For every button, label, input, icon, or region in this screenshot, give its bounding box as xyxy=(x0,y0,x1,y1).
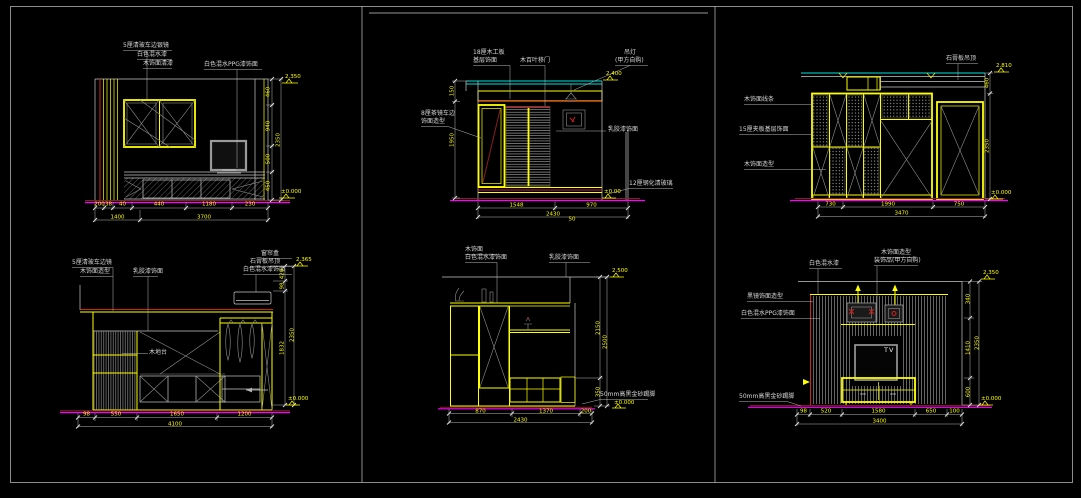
elevation-a xyxy=(85,51,298,223)
dim-label: 1580 xyxy=(872,409,886,415)
annotation-label: 乳胶漆饰面 xyxy=(608,127,638,133)
dim-label: 98 xyxy=(280,283,286,290)
dim-label: 550 xyxy=(111,412,122,418)
annotation-label: 木饰面造型 xyxy=(80,269,110,275)
annotation-label: 饰面造型 xyxy=(421,119,445,125)
dim-total-label: 4100 xyxy=(168,422,182,428)
level-label: ±0.00 xyxy=(604,190,621,196)
annotation-label: 白色混水PPG漆饰面 xyxy=(204,62,258,68)
level-label: ±0.000 xyxy=(281,190,301,196)
annotation-label: 8厘茶镜车边 xyxy=(421,111,455,117)
dim-label: 230 xyxy=(245,202,256,208)
annotation-label: 木地台 xyxy=(149,350,167,356)
dim-label: 350 xyxy=(596,387,602,398)
framed-art xyxy=(847,303,903,322)
dim-total-label: 3470 xyxy=(895,211,909,217)
annotation-label: 木饰面 xyxy=(465,247,483,253)
annotation-label: (甲方自购) xyxy=(615,58,644,64)
level-label: ±0.000 xyxy=(288,397,308,403)
annotation-label: 白色混水漆 xyxy=(809,261,839,267)
annotation-label: 18厘木工板 xyxy=(473,50,505,56)
dim-label: 420 xyxy=(280,268,286,279)
level-label: 2.810 xyxy=(996,64,1012,70)
dim-label: 340 xyxy=(966,294,972,305)
annotation-label: 木饰面线条 xyxy=(744,97,774,103)
hanging-clothes xyxy=(226,320,258,362)
annotation-label: 15厘夹板基层饰面 xyxy=(739,127,789,133)
dim-label: 1400 xyxy=(111,215,125,221)
level-label: 2.350 xyxy=(983,271,999,277)
annotation-label: 黑镜饰面造型 xyxy=(747,294,783,300)
dim-total-label: 3400 xyxy=(873,419,887,425)
annotation-label: 木饰面造型 xyxy=(881,250,911,256)
dim-label: 3700 xyxy=(197,215,211,221)
cad-canvas[interactable]: .w{stroke:#c8c8c8;stroke-width:0.7;fill:… xyxy=(0,0,1081,498)
tv-monitor xyxy=(211,141,246,170)
elevation-f xyxy=(739,258,995,427)
dim-label: 38 xyxy=(105,202,112,208)
dim-label: 730 xyxy=(825,202,836,208)
dim-label: 98 xyxy=(83,412,90,418)
annotation-label: 乳胶漆饰面 xyxy=(133,269,163,275)
dim-label: 450 xyxy=(266,181,272,192)
annotation-label: 乳胶漆饰面 xyxy=(549,255,579,261)
dim-label: 460 xyxy=(985,78,991,89)
dim-label: 1832 xyxy=(280,341,286,355)
dim-label: 50 xyxy=(569,217,576,223)
dim-label: 1200 xyxy=(238,412,252,418)
dim-total-label: 2500 xyxy=(603,335,609,349)
dim-label: 2150 xyxy=(596,321,602,335)
annotation-label: 白色混水漆 xyxy=(137,52,167,58)
elevation-b xyxy=(421,66,673,220)
dim-label: 970 xyxy=(586,203,597,209)
dim-label: 1370 xyxy=(539,409,553,415)
elevation-d xyxy=(60,259,308,429)
dim-label: 1950 xyxy=(450,133,456,147)
dim-label: 2350 xyxy=(985,139,991,153)
dim-label: 1548 xyxy=(510,203,524,209)
dim-label: 200 xyxy=(581,409,592,415)
level-label: ±0.000 xyxy=(981,397,1001,403)
dim-label: 460 xyxy=(266,87,272,98)
annotation-label: 白色混水PPG漆饰面 xyxy=(741,311,795,317)
dim-label: 870 xyxy=(475,409,486,415)
dim-label: 520 xyxy=(821,409,832,415)
dim-total-label: 2350 xyxy=(276,133,282,147)
dim-label: 1180 xyxy=(202,202,216,208)
dim-label: 600 xyxy=(966,386,972,397)
elevation-e xyxy=(438,255,648,425)
dim-label: 150 xyxy=(450,86,456,97)
level-label: ±0.000 xyxy=(991,191,1011,197)
annotation-label: 窗帘盒 xyxy=(261,251,279,257)
annotation-label: 木饰面清漆 xyxy=(143,61,173,67)
annotation-label: 木百叶移门 xyxy=(520,58,550,64)
dim-label: 1650 xyxy=(170,412,184,418)
dim-label: 100 xyxy=(949,409,960,415)
annotation-label: 5厘清玻车边银镜 xyxy=(123,43,169,49)
tv-label: TV xyxy=(884,347,894,354)
annotation-label: 50mm高黑金砂踢脚 xyxy=(739,394,794,400)
table-lamp xyxy=(524,318,532,330)
annotation-label: 5厘清玻车边镜 xyxy=(72,260,112,266)
annotation-label: 50mm高黑金砂踢脚 xyxy=(600,392,655,398)
cad-viewport[interactable]: .w{stroke:#c8c8c8;stroke-width:0.7;fill:… xyxy=(0,0,1081,498)
dim-label: 98 xyxy=(800,409,807,415)
dim-total-label: 2350 xyxy=(975,336,981,350)
dim-label: 440 xyxy=(154,202,165,208)
annotation-label: 石膏板吊顶 xyxy=(946,56,976,62)
dim-label: 200 xyxy=(94,202,105,208)
annotation-label: 吊灯 xyxy=(624,50,636,56)
annotation-label: 石膏板吊顶 xyxy=(250,259,280,265)
dim-total-label: 2430 xyxy=(514,418,528,424)
air-conditioner xyxy=(234,292,271,304)
dim-label: 650 xyxy=(926,409,937,415)
level-label: 2.365 xyxy=(296,258,312,264)
annotation-label: 白色混水漆饰面 xyxy=(465,255,507,261)
dim-label: 1990 xyxy=(881,202,895,208)
level-label: 2.500 xyxy=(612,269,628,275)
annotation-label: 装饰品(甲方自购) xyxy=(874,258,921,264)
decor-items xyxy=(455,288,493,302)
level-label: ±0.000 xyxy=(614,401,634,407)
elevation-c xyxy=(739,64,1009,219)
pendant-lamp xyxy=(565,84,577,101)
level-label: 2.350 xyxy=(285,75,301,81)
dim-label: 750 xyxy=(954,202,965,208)
annotation-label: 木饰面造型 xyxy=(744,162,774,168)
dim-label: 40 xyxy=(119,202,126,208)
level-label: 2.400 xyxy=(606,72,622,78)
annotation-label: 12厘钢化清玻璃 xyxy=(629,181,673,187)
annotation-label: 基层饰面 xyxy=(473,58,497,64)
dim-total-label: 2350 xyxy=(290,328,296,342)
dim-label: 940 xyxy=(266,120,272,131)
dim-total-label: 2430 xyxy=(546,212,560,218)
dim-label: 1410 xyxy=(966,341,972,355)
dim-label: 500 xyxy=(266,154,272,165)
